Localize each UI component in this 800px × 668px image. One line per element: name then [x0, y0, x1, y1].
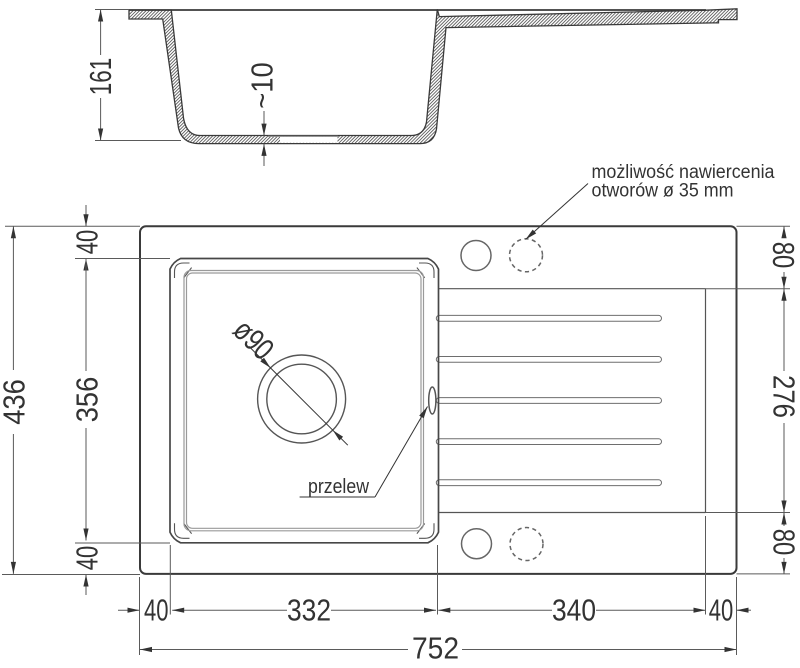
svg-text:40: 40 — [70, 230, 105, 255]
svg-text:436: 436 — [0, 379, 31, 425]
svg-text:340: 340 — [552, 593, 596, 628]
svg-text:40: 40 — [709, 593, 734, 628]
svg-text:752: 752 — [412, 631, 459, 666]
svg-text:otworów ø 35 mm: otworów ø 35 mm — [592, 181, 734, 202]
svg-text:332: 332 — [287, 593, 331, 628]
svg-text:80: 80 — [766, 242, 800, 269]
svg-text:356: 356 — [70, 377, 105, 423]
svg-text:276: 276 — [767, 375, 800, 418]
svg-text:~10: ~10 — [244, 62, 279, 109]
svg-text:40: 40 — [144, 593, 169, 628]
svg-text:przelew: przelew — [308, 476, 369, 498]
svg-text:40: 40 — [70, 546, 105, 571]
svg-text:161: 161 — [83, 58, 118, 96]
svg-text:80: 80 — [767, 529, 800, 556]
